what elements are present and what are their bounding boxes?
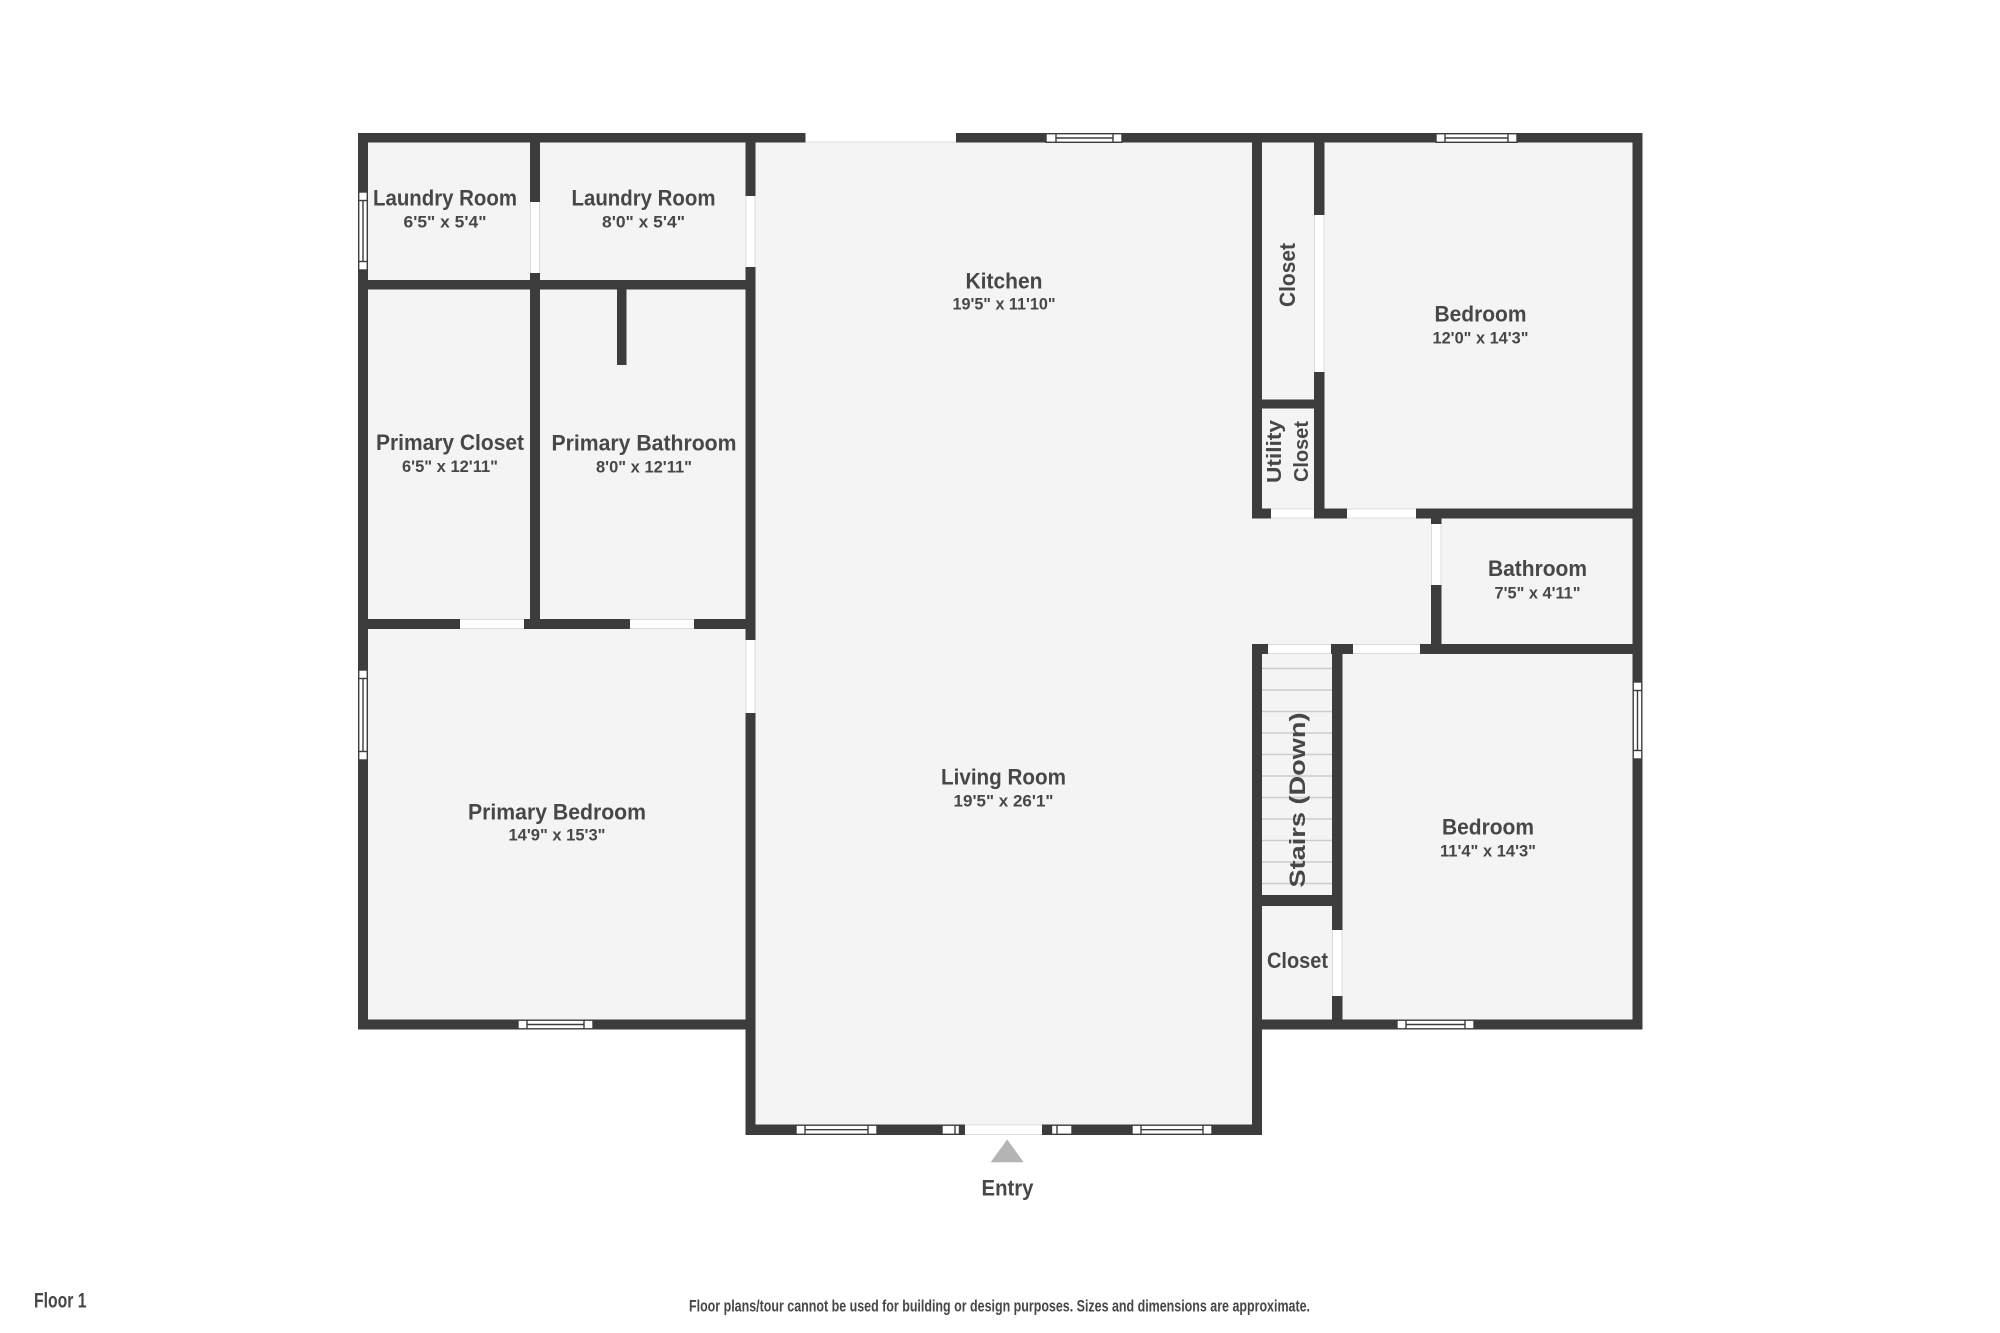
- svg-text:Entry: Entry: [982, 1176, 1035, 1201]
- svg-text:Laundry Room: Laundry Room: [373, 186, 517, 211]
- svg-text:19'5" x 11'10": 19'5" x 11'10": [953, 295, 1056, 314]
- svg-text:7'5" x 4'11": 7'5" x 4'11": [1495, 584, 1581, 603]
- svg-text:Primary Bathroom: Primary Bathroom: [552, 431, 737, 456]
- svg-text:Kitchen: Kitchen: [966, 269, 1043, 294]
- svg-text:Bathroom: Bathroom: [1488, 556, 1587, 581]
- svg-text:Floor plans/tour cannot be use: Floor plans/tour cannot be used for buil…: [689, 1298, 1310, 1316]
- svg-text:6'5" x 5'4": 6'5" x 5'4": [404, 213, 487, 232]
- svg-text:Stairs (Down): Stairs (Down): [1285, 713, 1310, 888]
- svg-text:Bedroom: Bedroom: [1435, 302, 1527, 327]
- svg-text:14'9" x 15'3": 14'9" x 15'3": [509, 826, 606, 845]
- svg-text:Closet: Closet: [1291, 421, 1313, 482]
- svg-text:6'5" x 12'11": 6'5" x 12'11": [402, 457, 498, 476]
- svg-text:Primary Bedroom: Primary Bedroom: [468, 800, 646, 825]
- svg-text:Closet: Closet: [1267, 948, 1329, 973]
- svg-text:8'0" x 5'4": 8'0" x 5'4": [602, 213, 685, 232]
- svg-text:12'0" x 14'3": 12'0" x 14'3": [1433, 329, 1529, 348]
- svg-text:Laundry Room: Laundry Room: [572, 186, 716, 211]
- svg-text:Utility: Utility: [1264, 419, 1286, 483]
- svg-text:19'5" x 26'1": 19'5" x 26'1": [954, 792, 1054, 811]
- svg-text:Primary Closet: Primary Closet: [376, 430, 525, 455]
- svg-text:Floor 1: Floor 1: [34, 1290, 87, 1313]
- svg-text:Closet: Closet: [1275, 242, 1300, 307]
- svg-text:8'0" x 12'11": 8'0" x 12'11": [596, 458, 692, 477]
- svg-text:Bedroom: Bedroom: [1442, 815, 1534, 840]
- svg-text:11'4" x 14'3": 11'4" x 14'3": [1440, 842, 1536, 861]
- svg-text:Living Room: Living Room: [941, 765, 1066, 790]
